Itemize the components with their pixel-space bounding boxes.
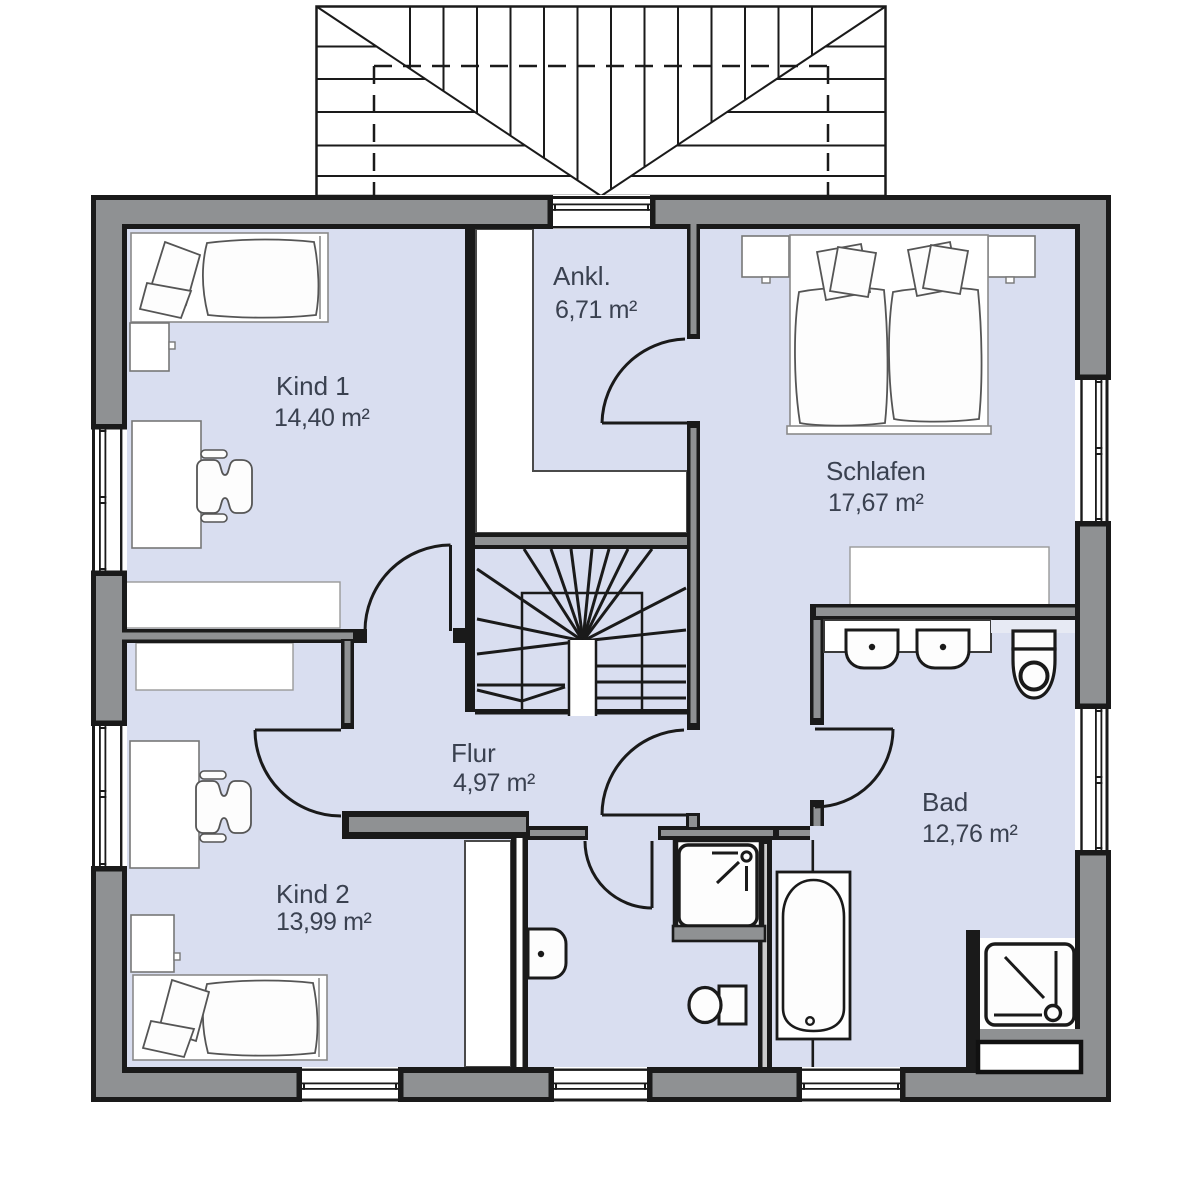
svg-text:Ankl.: Ankl.	[553, 261, 611, 291]
svg-text:4,97 m²: 4,97 m²	[453, 769, 535, 797]
svg-text:14,40 m²: 14,40 m²	[274, 404, 370, 432]
svg-text:Kind 2: Kind 2	[276, 879, 350, 909]
svg-text:Bad: Bad	[922, 787, 968, 817]
svg-text:6,71 m²: 6,71 m²	[555, 296, 637, 324]
svg-text:13,99 m²: 13,99 m²	[276, 908, 372, 936]
svg-text:Kind 1: Kind 1	[276, 371, 350, 401]
svg-text:17,67 m²: 17,67 m²	[828, 489, 924, 517]
svg-text:Flur: Flur	[451, 738, 496, 768]
svg-text:12,76 m²: 12,76 m²	[922, 820, 1018, 848]
svg-text:Schlafen: Schlafen	[826, 456, 926, 486]
